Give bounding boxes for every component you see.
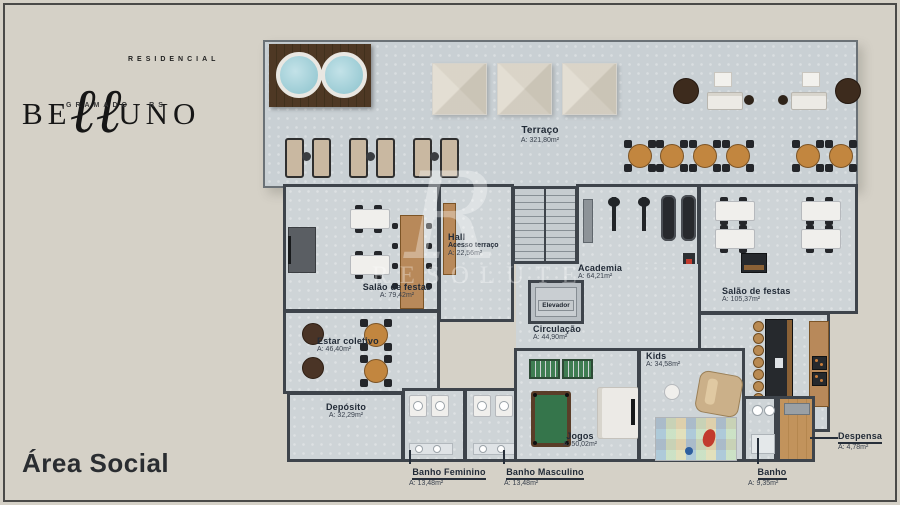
foosball-table [562,359,593,379]
party-table [801,201,841,221]
brand-location: GRAMADO - RS [66,102,167,109]
room-banho [743,396,777,462]
label-academia: Academia A: 64,21m² [578,263,658,281]
treadmill [661,195,676,241]
toy-ball [685,447,693,455]
lounge-set [777,72,859,116]
room-despensa [777,396,815,462]
bar-stool [753,333,764,344]
lounger-pair [349,138,393,176]
dining-table-set [658,142,686,170]
kitchen-counter [809,321,829,407]
coffee-table-set [362,357,390,385]
label-terraco: Terraço A: 321,80m² [497,125,583,145]
label-circulacao: Circulação A: 44,90m² [533,324,623,342]
sofa-tv-unit [288,227,316,273]
foosball-table [529,359,560,379]
label-despensa: Despensa A: 4,78m² [838,426,896,452]
label-kids: Kids A: 34,58m² [646,351,706,369]
room-banho-feminino [402,388,466,462]
floorplan-poster: RESIDENCIAL BEℓℓUNO GRAMADO - RS Área So… [0,0,900,505]
room-terraco [263,40,858,188]
hot-tub [276,52,322,98]
bar-stool [753,357,764,368]
party-table [350,255,390,275]
brand-residencial: RESIDENCIAL [128,56,219,63]
storage-shelf [784,403,810,415]
play-mat [655,417,737,461]
patio-umbrella [497,63,552,115]
treadmill [681,195,696,241]
dining-table-set [794,142,822,170]
bar-stool [753,369,764,380]
bar-stool [753,345,764,356]
label-banho: Banho A: 9,35m² [742,462,802,488]
party-table [350,209,390,229]
dining-table-set [827,142,855,170]
dining-table-set [626,142,654,170]
label-hall: Hall Acesso terraço A: 22,56m² [448,232,518,258]
label-salao-festas-2: Salão de festas A: 105,37m² [722,286,818,304]
hot-tub [321,52,367,98]
label-salao-festas-1: Salão de festas A: 79,42m² [348,282,446,300]
brand-name-start: BE [22,96,72,131]
label-estar-coletivo: Estar coletivo A: 46,40m² [317,336,407,354]
patio-umbrella [432,63,487,115]
tv-cabinet [741,253,767,273]
party-table [801,229,841,249]
wood-deck [269,44,371,107]
kids-table [663,383,681,401]
staircase [512,186,578,264]
lounger-pair [285,138,329,176]
dining-table-set [724,142,752,170]
round-pouf [302,357,324,379]
leader-despensa [810,437,838,439]
party-table [715,201,755,221]
tv-screen [631,399,635,425]
lounge-set [673,72,755,116]
label-banho-masculino: Banho Masculino A: 13,48m² [499,462,591,488]
label-deposito: Depósito A: 32,29m² [308,402,384,420]
bar-stool [753,381,764,392]
label-jogos: Jogos A: 50,02m² [552,431,608,449]
party-table [715,229,755,249]
label-banho-feminino: Banho Feminino A: 13,48m² [404,462,494,488]
patio-umbrella [562,63,617,115]
weight-station [637,197,651,231]
leader-banho [757,438,759,464]
dining-table-set [691,142,719,170]
brand-name-script: ℓℓ [70,74,122,147]
lounger-pair [413,138,457,176]
page-title: Área Social [22,448,169,479]
wall-bars [583,199,593,243]
play-structure [694,369,745,418]
bar-counter [765,319,793,407]
weight-station [607,197,621,231]
bar-stool [753,321,764,332]
label-elevador: Elevador [528,294,584,312]
